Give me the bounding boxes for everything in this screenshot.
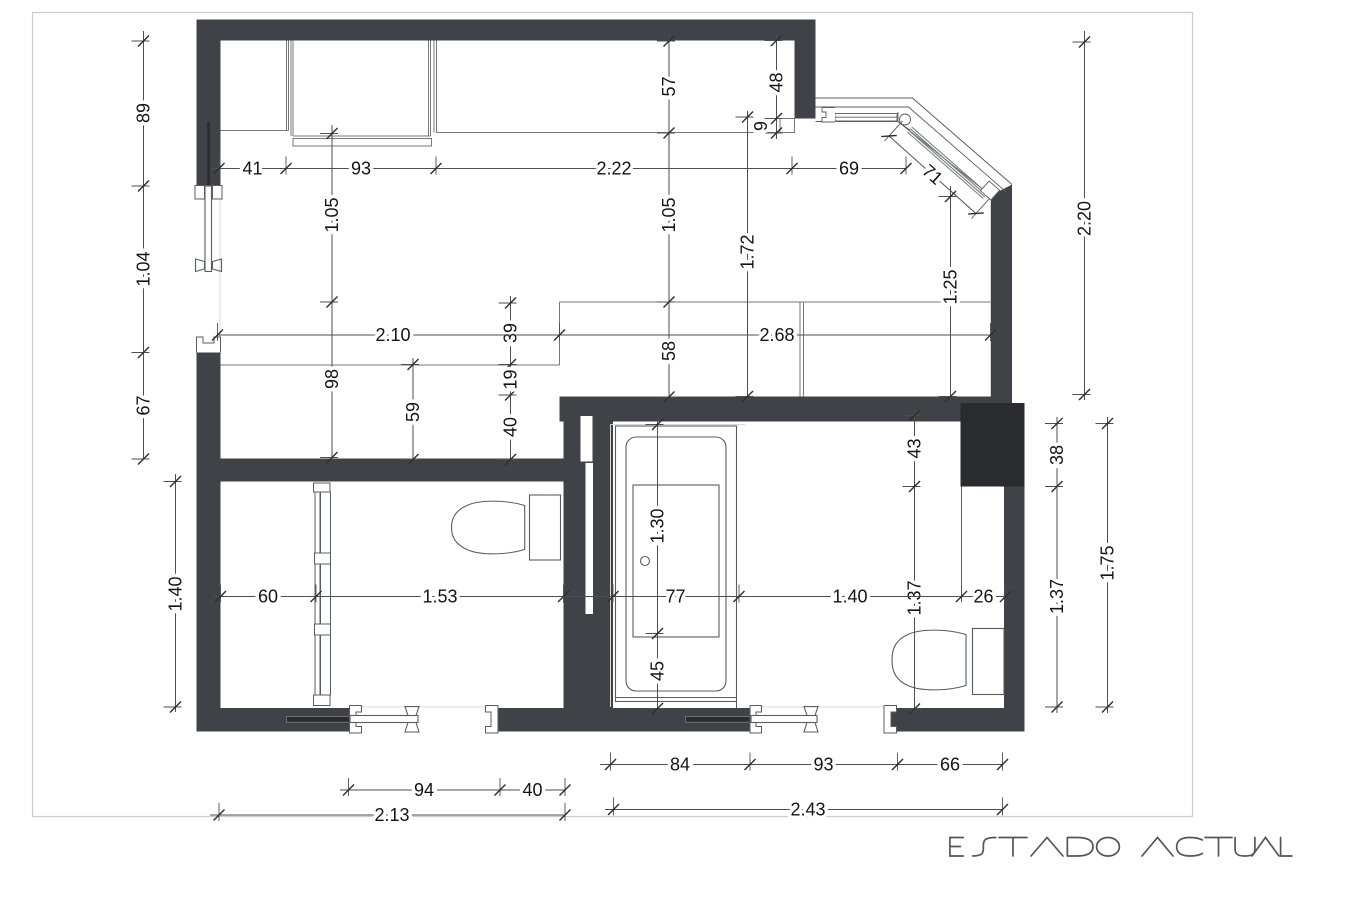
- svg-text:26: 26: [973, 587, 993, 607]
- svg-text:1.40: 1.40: [832, 587, 867, 607]
- svg-text:67: 67: [134, 395, 154, 415]
- svg-text:84: 84: [670, 755, 690, 775]
- svg-text:41: 41: [242, 159, 262, 179]
- svg-text:48: 48: [767, 72, 787, 92]
- svg-text:2.22: 2.22: [596, 159, 631, 179]
- svg-text:60: 60: [258, 587, 278, 607]
- svg-text:39: 39: [501, 323, 521, 343]
- svg-text:40: 40: [501, 417, 521, 437]
- svg-text:66: 66: [940, 755, 960, 775]
- svg-text:69: 69: [839, 159, 859, 179]
- svg-text:2.20: 2.20: [1075, 201, 1095, 236]
- svg-text:1.37: 1.37: [905, 580, 925, 615]
- svg-text:19: 19: [501, 369, 521, 389]
- svg-text:77: 77: [665, 587, 685, 607]
- svg-text:93: 93: [351, 159, 371, 179]
- svg-text:1.37: 1.37: [1047, 579, 1067, 614]
- svg-text:93: 93: [813, 755, 833, 775]
- svg-text:1.25: 1.25: [941, 269, 961, 304]
- svg-text:43: 43: [905, 438, 925, 458]
- svg-text:1.05: 1.05: [322, 197, 342, 232]
- svg-text:1.04: 1.04: [134, 251, 154, 286]
- svg-text:1.40: 1.40: [166, 576, 186, 611]
- svg-text:1.53: 1.53: [422, 587, 457, 607]
- svg-text:2.68: 2.68: [759, 325, 794, 345]
- svg-text:45: 45: [648, 661, 668, 681]
- svg-text:2.10: 2.10: [375, 325, 410, 345]
- svg-text:94: 94: [414, 780, 434, 800]
- svg-text:1.30: 1.30: [648, 508, 668, 543]
- svg-text:1.75: 1.75: [1098, 545, 1118, 580]
- svg-text:59: 59: [403, 402, 423, 422]
- svg-text:58: 58: [659, 341, 679, 361]
- svg-text:1.72: 1.72: [738, 234, 758, 269]
- svg-text:1.05: 1.05: [659, 197, 679, 232]
- svg-text:2.13: 2.13: [374, 805, 409, 825]
- svg-text:9: 9: [751, 121, 771, 131]
- svg-text:98: 98: [322, 369, 342, 389]
- svg-text:57: 57: [659, 76, 679, 96]
- svg-text:40: 40: [522, 780, 542, 800]
- svg-text:2.43: 2.43: [790, 800, 825, 820]
- svg-text:38: 38: [1047, 445, 1067, 465]
- svg-text:89: 89: [134, 103, 154, 123]
